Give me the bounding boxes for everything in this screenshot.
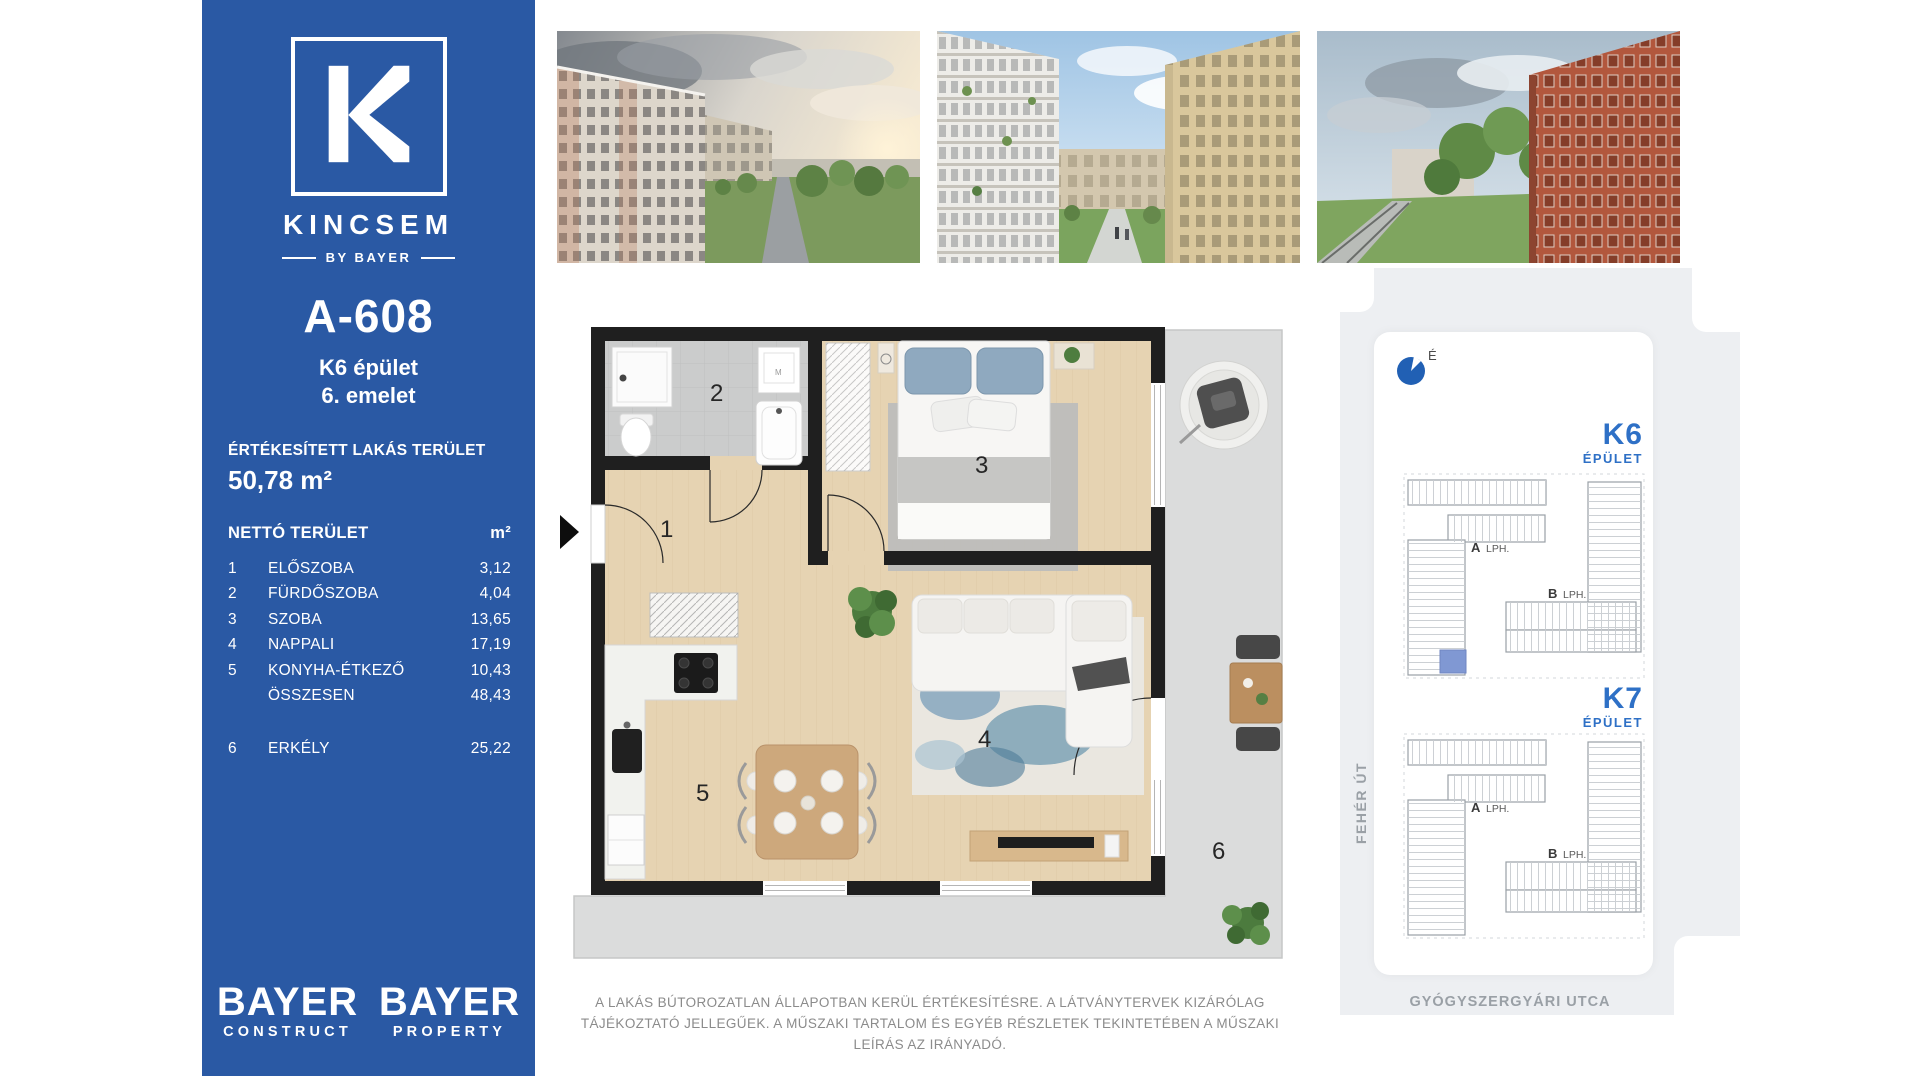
room-number-4: 4 bbox=[978, 726, 991, 753]
dining-set bbox=[739, 745, 875, 859]
building-label: ÉPÜLET bbox=[1583, 715, 1643, 730]
sold-area-block: ÉRTÉKESÍTETT LAKÁS TERÜLET 50,78 m² bbox=[202, 442, 535, 496]
lobby-a-label: A bbox=[1471, 800, 1481, 815]
building-name: K6 épület bbox=[202, 355, 535, 381]
row-name: SZOBA bbox=[268, 611, 471, 629]
sidebar-panel: KINCSEM BY BAYER A-608 K6 épület 6. emel… bbox=[202, 0, 535, 1076]
row-num: 3 bbox=[228, 611, 268, 629]
footprint-k6: A LPH. B LPH. bbox=[1402, 470, 1647, 682]
row-value: 3,12 bbox=[480, 560, 511, 578]
byline-rule-right bbox=[421, 257, 455, 259]
row-value: 48,43 bbox=[471, 687, 511, 705]
disclaimer-text: A LAKÁS BÚTOROZATLAN ÁLLAPOTBAN KERÜL ÉR… bbox=[556, 993, 1304, 1056]
lobby-a-suffix: LPH. bbox=[1486, 803, 1509, 815]
logo-subtitle: CONSTRUCT bbox=[213, 1024, 363, 1040]
row-num: 6 bbox=[228, 740, 268, 758]
brand-name: KINCSEM bbox=[202, 209, 535, 241]
unit-code: A-608 bbox=[202, 289, 535, 343]
table-row-total: ÖSSZESEN 48,43 bbox=[228, 684, 511, 710]
row-name: ELŐSZOBA bbox=[268, 560, 480, 578]
footer-logos: BAYER CONSTRUCT BAYER PROPERTY bbox=[202, 982, 535, 1040]
site-map-card: É K6 ÉPÜLET bbox=[1374, 332, 1653, 975]
lobby-b-label: B bbox=[1548, 846, 1557, 861]
row-name: KONYHA-ÉTKEZŐ bbox=[268, 662, 471, 680]
render-photo-street-view bbox=[557, 31, 920, 263]
table-row: 4 NAPPALI 17,19 bbox=[228, 633, 511, 659]
sold-area-label: ÉRTÉKESÍTETT LAKÁS TERÜLET bbox=[228, 442, 511, 460]
compass: É bbox=[1394, 354, 1454, 394]
washer-label: M bbox=[775, 368, 782, 377]
building-label: ÉPÜLET bbox=[1583, 451, 1643, 466]
kincsem-logo bbox=[291, 37, 447, 196]
floor-label: 6. emelet bbox=[202, 383, 535, 409]
lobby-b-label: B bbox=[1548, 586, 1557, 601]
entrance-arrow-icon bbox=[560, 515, 579, 549]
street-name-feher-ut: FEHÉR ÚT bbox=[1353, 758, 1369, 848]
room-number-6: 6 bbox=[1212, 838, 1225, 865]
floorplan: M bbox=[560, 315, 1285, 970]
row-value: 10,43 bbox=[471, 662, 511, 680]
building-code: K6 bbox=[1583, 420, 1643, 450]
street-name-gyogyszergyari-utca: GYÓGYSZERGYÁRI UTCA bbox=[1340, 994, 1680, 1010]
row-name: NAPPALI bbox=[268, 636, 471, 654]
row-name: FÜRDŐSZOBA bbox=[268, 585, 480, 603]
city-block bbox=[1692, 268, 1740, 332]
site-map: É K6 ÉPÜLET bbox=[1340, 268, 1740, 1015]
hanging-chair bbox=[1180, 361, 1268, 449]
table-row: 2 FÜRDŐSZOBA 4,04 bbox=[228, 582, 511, 608]
lobby-b-suffix: LPH. bbox=[1563, 849, 1586, 861]
room-number-5: 5 bbox=[696, 780, 709, 807]
row-num: 4 bbox=[228, 636, 268, 654]
net-area-unit-header: m² bbox=[490, 524, 511, 543]
building-code-k6: K6 ÉPÜLET bbox=[1583, 420, 1643, 466]
byline-rule-left bbox=[282, 257, 316, 259]
logo-title: BAYER bbox=[375, 982, 525, 1022]
render-photo-promenade bbox=[1317, 31, 1680, 263]
row-value: 13,65 bbox=[471, 611, 511, 629]
row-value: 25,22 bbox=[471, 740, 511, 758]
room-number-2: 2 bbox=[710, 380, 723, 407]
row-name: ERKÉLY bbox=[268, 740, 471, 758]
building-code-k7: K7 ÉPÜLET bbox=[1583, 684, 1643, 730]
lobby-a-suffix: LPH. bbox=[1486, 543, 1509, 555]
bayer-construct-logo: BAYER CONSTRUCT bbox=[213, 982, 363, 1040]
room-number-3: 3 bbox=[975, 452, 988, 479]
building-code: K7 bbox=[1583, 684, 1643, 714]
row-num: 2 bbox=[228, 585, 268, 603]
row-name: ÖSSZESEN bbox=[268, 687, 471, 705]
hall-cabinet bbox=[650, 593, 738, 637]
sold-area-value: 50,78 m² bbox=[228, 465, 511, 496]
highlighted-unit bbox=[1440, 650, 1466, 673]
row-value: 17,19 bbox=[471, 636, 511, 654]
render-photo-courtyard bbox=[937, 31, 1300, 263]
footprint-k7: A LPH. B LPH. bbox=[1402, 730, 1647, 942]
table-row: 5 KONYHA-ÉTKEZŐ 10,43 bbox=[228, 658, 511, 684]
net-area-title: NETTÓ TERÜLET bbox=[228, 524, 368, 543]
table-row: 1 ELŐSZOBA 3,12 bbox=[228, 556, 511, 582]
city-block bbox=[1340, 268, 1374, 312]
plant bbox=[1222, 902, 1270, 945]
row-num: 5 bbox=[228, 662, 268, 680]
logo-subtitle: PROPERTY bbox=[375, 1024, 525, 1040]
logo-title: BAYER bbox=[213, 982, 363, 1022]
table-row: 3 SZOBA 13,65 bbox=[228, 607, 511, 633]
city-block bbox=[1674, 936, 1740, 1015]
bistro-set bbox=[1230, 635, 1282, 751]
byline-text: BY BAYER bbox=[326, 250, 412, 265]
table-row: 6 ERKÉLY 25,22 bbox=[228, 736, 511, 762]
lobby-b-suffix: LPH. bbox=[1563, 589, 1586, 601]
north-label: É bbox=[1428, 348, 1437, 363]
lobby-a-label: A bbox=[1471, 540, 1481, 555]
row-value: 4,04 bbox=[480, 585, 511, 603]
bayer-property-logo: BAYER PROPERTY bbox=[375, 982, 525, 1040]
room-number-1: 1 bbox=[660, 516, 673, 543]
compass-icon bbox=[1394, 354, 1428, 388]
row-num: 1 bbox=[228, 560, 268, 578]
brand-byline: BY BAYER bbox=[202, 250, 535, 265]
net-area-table: NETTÓ TERÜLET m² 1 ELŐSZOBA 3,12 2 FÜRDŐ… bbox=[202, 524, 535, 762]
kincsem-k-icon bbox=[313, 54, 425, 179]
